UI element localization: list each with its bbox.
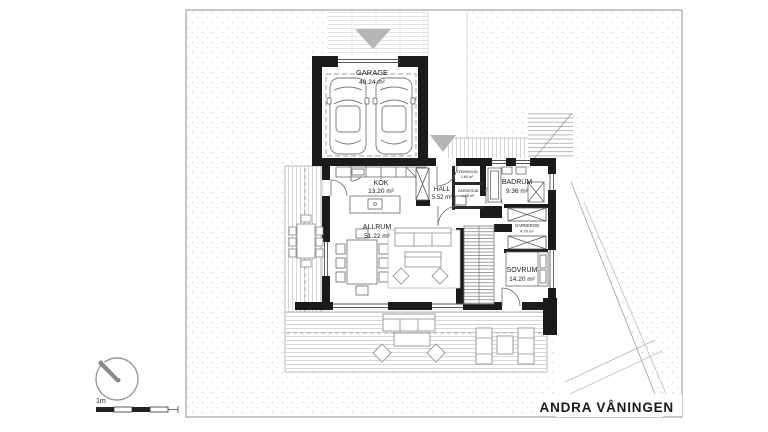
kok-area: 13.20 m² <box>368 188 394 195</box>
garage-name: GARAGE <box>356 68 388 77</box>
scale-bar: 1m <box>96 398 178 413</box>
car-2 <box>373 78 415 154</box>
hillside-steps <box>528 112 573 160</box>
teknikrum-name: TEKNIKRUM <box>456 170 477 174</box>
badrum-area: 9.36 m² <box>506 188 529 195</box>
sovrum-name: SOVRUM <box>507 267 538 274</box>
hall-name: HALL <box>434 186 451 193</box>
outdoor-table <box>394 333 430 346</box>
garderob-name: GARDEROB <box>515 223 539 228</box>
garderob-hall-name: GARDEROB <box>458 189 479 193</box>
garderob-hall-area: 1.28 m² <box>462 194 475 198</box>
sink-1 <box>502 167 512 174</box>
garage-area: 40.24 m² <box>359 79 385 86</box>
kitchen-sink <box>352 169 364 175</box>
coffee-table <box>405 252 441 267</box>
floor-plan-svg: GARAGE 40.24 m² KÖK 13.20 m² HALL 5.52 m… <box>0 0 768 432</box>
sovrum-area: 14.20 m² <box>509 276 535 283</box>
sofa <box>395 228 451 246</box>
staircase <box>464 226 494 304</box>
wardrobe-kok-hall <box>416 168 429 200</box>
sofa-group <box>388 228 460 288</box>
plan-title: ANDRA VÅNINGEN <box>540 400 674 415</box>
sink-2 <box>516 167 526 174</box>
garderob-area: 4.70 m² <box>520 229 534 234</box>
teknikrum-area: 1.60 m² <box>461 175 474 179</box>
hall-area: 5.52 m² <box>432 195 452 201</box>
scale-label: 1m <box>96 398 106 405</box>
outdoor-sofa <box>383 314 435 331</box>
allrum-name: ALLRUM <box>363 224 392 231</box>
north-arrow-icon <box>96 358 138 400</box>
side-table <box>497 336 513 354</box>
floor-plan-page: GARAGE 40.24 m² KÖK 13.20 m² HALL 5.52 m… <box>0 0 768 432</box>
badrum-name: BADRUM <box>502 179 533 186</box>
kok-name: KÖK <box>374 179 389 187</box>
car-1 <box>327 78 369 154</box>
allrum-area: 51.22 m² <box>364 233 390 240</box>
